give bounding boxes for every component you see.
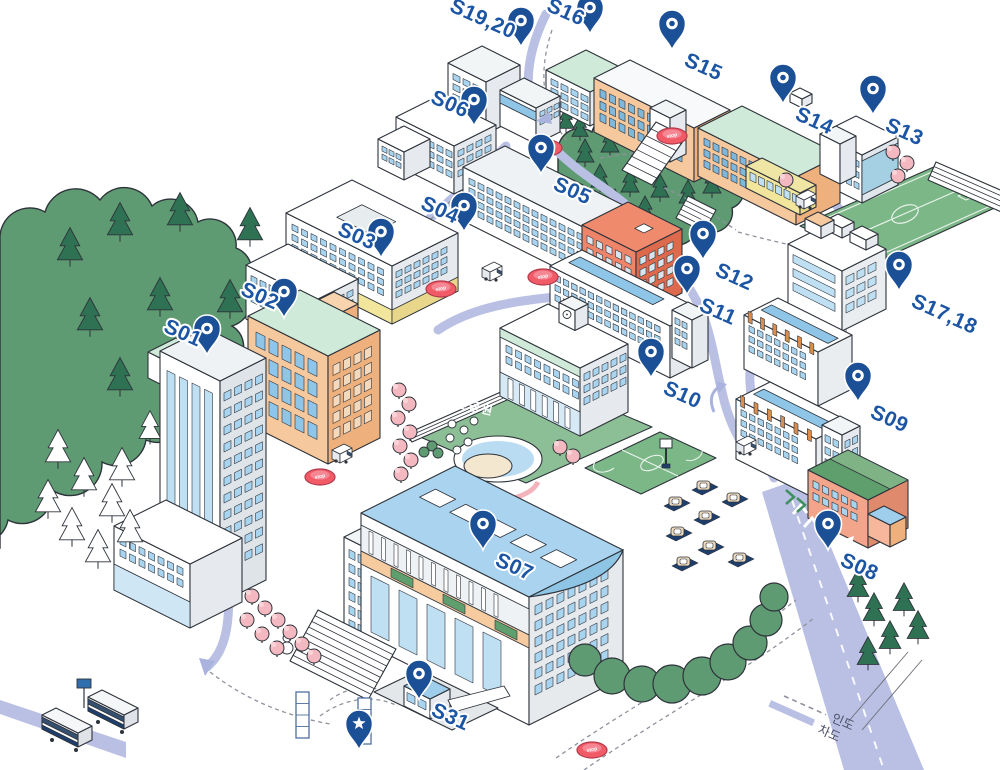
buildings-layer — [114, 46, 908, 725]
parked-car — [728, 553, 754, 567]
parked-car — [664, 497, 690, 511]
shuttle-bus-car-a — [88, 690, 138, 729]
parked-car — [672, 557, 698, 571]
parked-car — [692, 481, 718, 495]
parked-car — [666, 527, 692, 541]
campus-isometric-map: stopstopstopstopstopstop 뉴턴공원 S01S02S03S… — [0, 0, 1000, 770]
map-pin-icon — [690, 220, 717, 260]
map-pin-icon — [845, 362, 872, 402]
marker-label: S12 — [712, 259, 757, 296]
bus-stop-disc: stop — [657, 128, 687, 144]
marker-s17-18[interactable]: S17,18 — [886, 251, 981, 339]
marker-label: S09 — [867, 401, 912, 438]
parked-car — [698, 541, 724, 555]
parked-car — [694, 511, 720, 525]
shuttle-bus-car-b — [42, 708, 92, 747]
marker-label: S10 — [660, 377, 705, 414]
bus-stop-disc: stop — [305, 469, 335, 485]
parked-car — [722, 493, 748, 507]
marker-s12[interactable]: S12 — [690, 220, 757, 295]
marker-s15[interactable]: S15 — [659, 10, 726, 85]
marker-s19-20[interactable]: S19,20 — [446, 0, 534, 47]
marker-label: S19,20 — [446, 0, 519, 44]
marker-label: S15 — [681, 49, 726, 86]
marker-label: S17,18 — [908, 290, 981, 339]
map-pin-icon — [860, 75, 887, 115]
bus-stop-disc: stop — [577, 742, 607, 758]
truck — [482, 262, 502, 282]
bus-stop-disc: stop — [426, 281, 456, 297]
bus-stop-disc: stop — [528, 269, 558, 285]
legend-roadway-sample-line — [768, 700, 815, 726]
marker-s16[interactable]: S16 — [543, 0, 603, 34]
building-s02 — [248, 290, 380, 464]
map-pin-icon — [659, 10, 686, 50]
map-pin-icon — [886, 251, 913, 291]
